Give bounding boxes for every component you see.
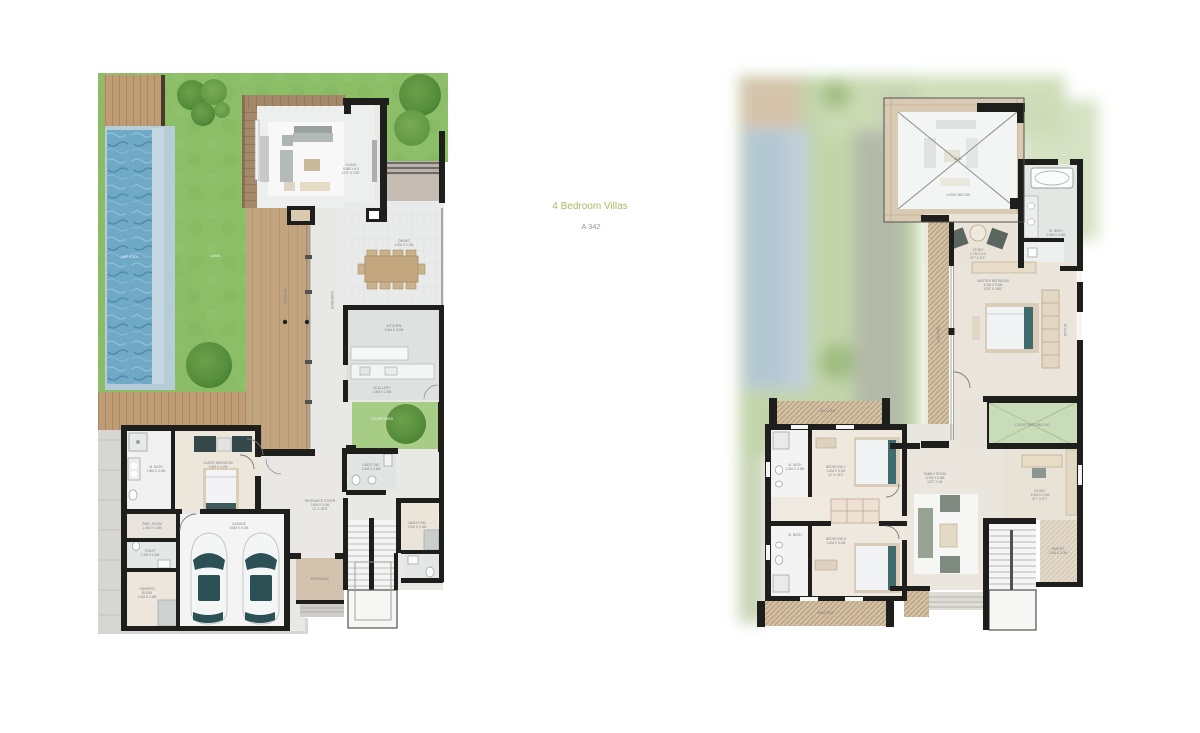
svg-text:M. BATH: M. BATH: [788, 533, 802, 537]
svg-text:ENTRANCE: ENTRANCE: [311, 577, 330, 581]
svg-text:12'2" X 18': 12'2" X 18': [927, 480, 943, 484]
svg-text:12' X 13'1": 12' X 13'1": [828, 473, 844, 477]
svg-text:BALCONY: BALCONY: [936, 327, 940, 344]
svg-text:4 Bedroom Villas: 4 Bedroom Villas: [552, 201, 627, 212]
svg-text:19'0" X 19'8": 19'0" X 19'8": [342, 171, 361, 175]
svg-text:LIVING BELOW: LIVING BELOW: [946, 193, 971, 197]
svg-text:BALCONY: BALCONY: [818, 611, 835, 615]
svg-text:2.6M X 4.6M: 2.6M X 4.6M: [1047, 233, 1066, 237]
svg-text:13'9" X 16'5": 13'9" X 16'5": [984, 287, 1003, 291]
svg-text:6'7" X 6'7": 6'7" X 6'7": [1033, 497, 1049, 501]
svg-text:BALCONY: BALCONY: [820, 409, 837, 413]
svg-text:2.0M X 2.6M: 2.0M X 2.6M: [408, 525, 427, 529]
svg-text:1.2M X 1.8M: 1.2M X 1.8M: [141, 553, 160, 557]
svg-text:TERRACE: TERRACE: [283, 288, 287, 305]
svg-text:1.8M X 2.0M: 1.8M X 2.0M: [1049, 551, 1068, 555]
svg-text:CORRIDOR: CORRIDOR: [330, 291, 334, 310]
svg-text:5'7" X 6'7": 5'7" X 6'7": [971, 256, 987, 260]
svg-text:1.8M X 3.0M: 1.8M X 3.0M: [147, 469, 166, 473]
svg-text:VOID: VOID: [954, 157, 963, 161]
svg-text:3.6M X 4.0M: 3.6M X 4.0M: [827, 541, 846, 545]
svg-text:W.I.CLR: W.I.CLR: [1063, 324, 1067, 337]
svg-text:3.6M X 3.0M: 3.6M X 3.0M: [385, 328, 404, 332]
svg-text:5.8M X 6.0M: 5.8M X 6.0M: [230, 526, 249, 530]
svg-text:COURTYARD BELOW: COURTYARD BELOW: [1015, 423, 1049, 427]
svg-text:LAP POOL: LAP POOL: [121, 255, 139, 259]
svg-text:12' X 16'5": 12' X 16'5": [312, 507, 328, 511]
svg-text:4.0M X 2.0M: 4.0M X 2.0M: [395, 243, 414, 247]
svg-text:2.0M X 2.6M: 2.0M X 2.6M: [138, 595, 157, 599]
svg-text:1.8M X 1.5M: 1.8M X 1.5M: [373, 390, 392, 394]
svg-text:1.6M X 2.6M: 1.6M X 2.6M: [362, 467, 381, 471]
svg-text:COURTYARD: COURTYARD: [371, 417, 394, 421]
svg-text:1.5M X 2.8M: 1.5M X 2.8M: [786, 467, 805, 471]
svg-text:LAWN: LAWN: [210, 254, 221, 258]
svg-text:1.5M X 1.5M: 1.5M X 1.5M: [143, 526, 162, 530]
svg-text:A 342: A 342: [581, 222, 600, 231]
